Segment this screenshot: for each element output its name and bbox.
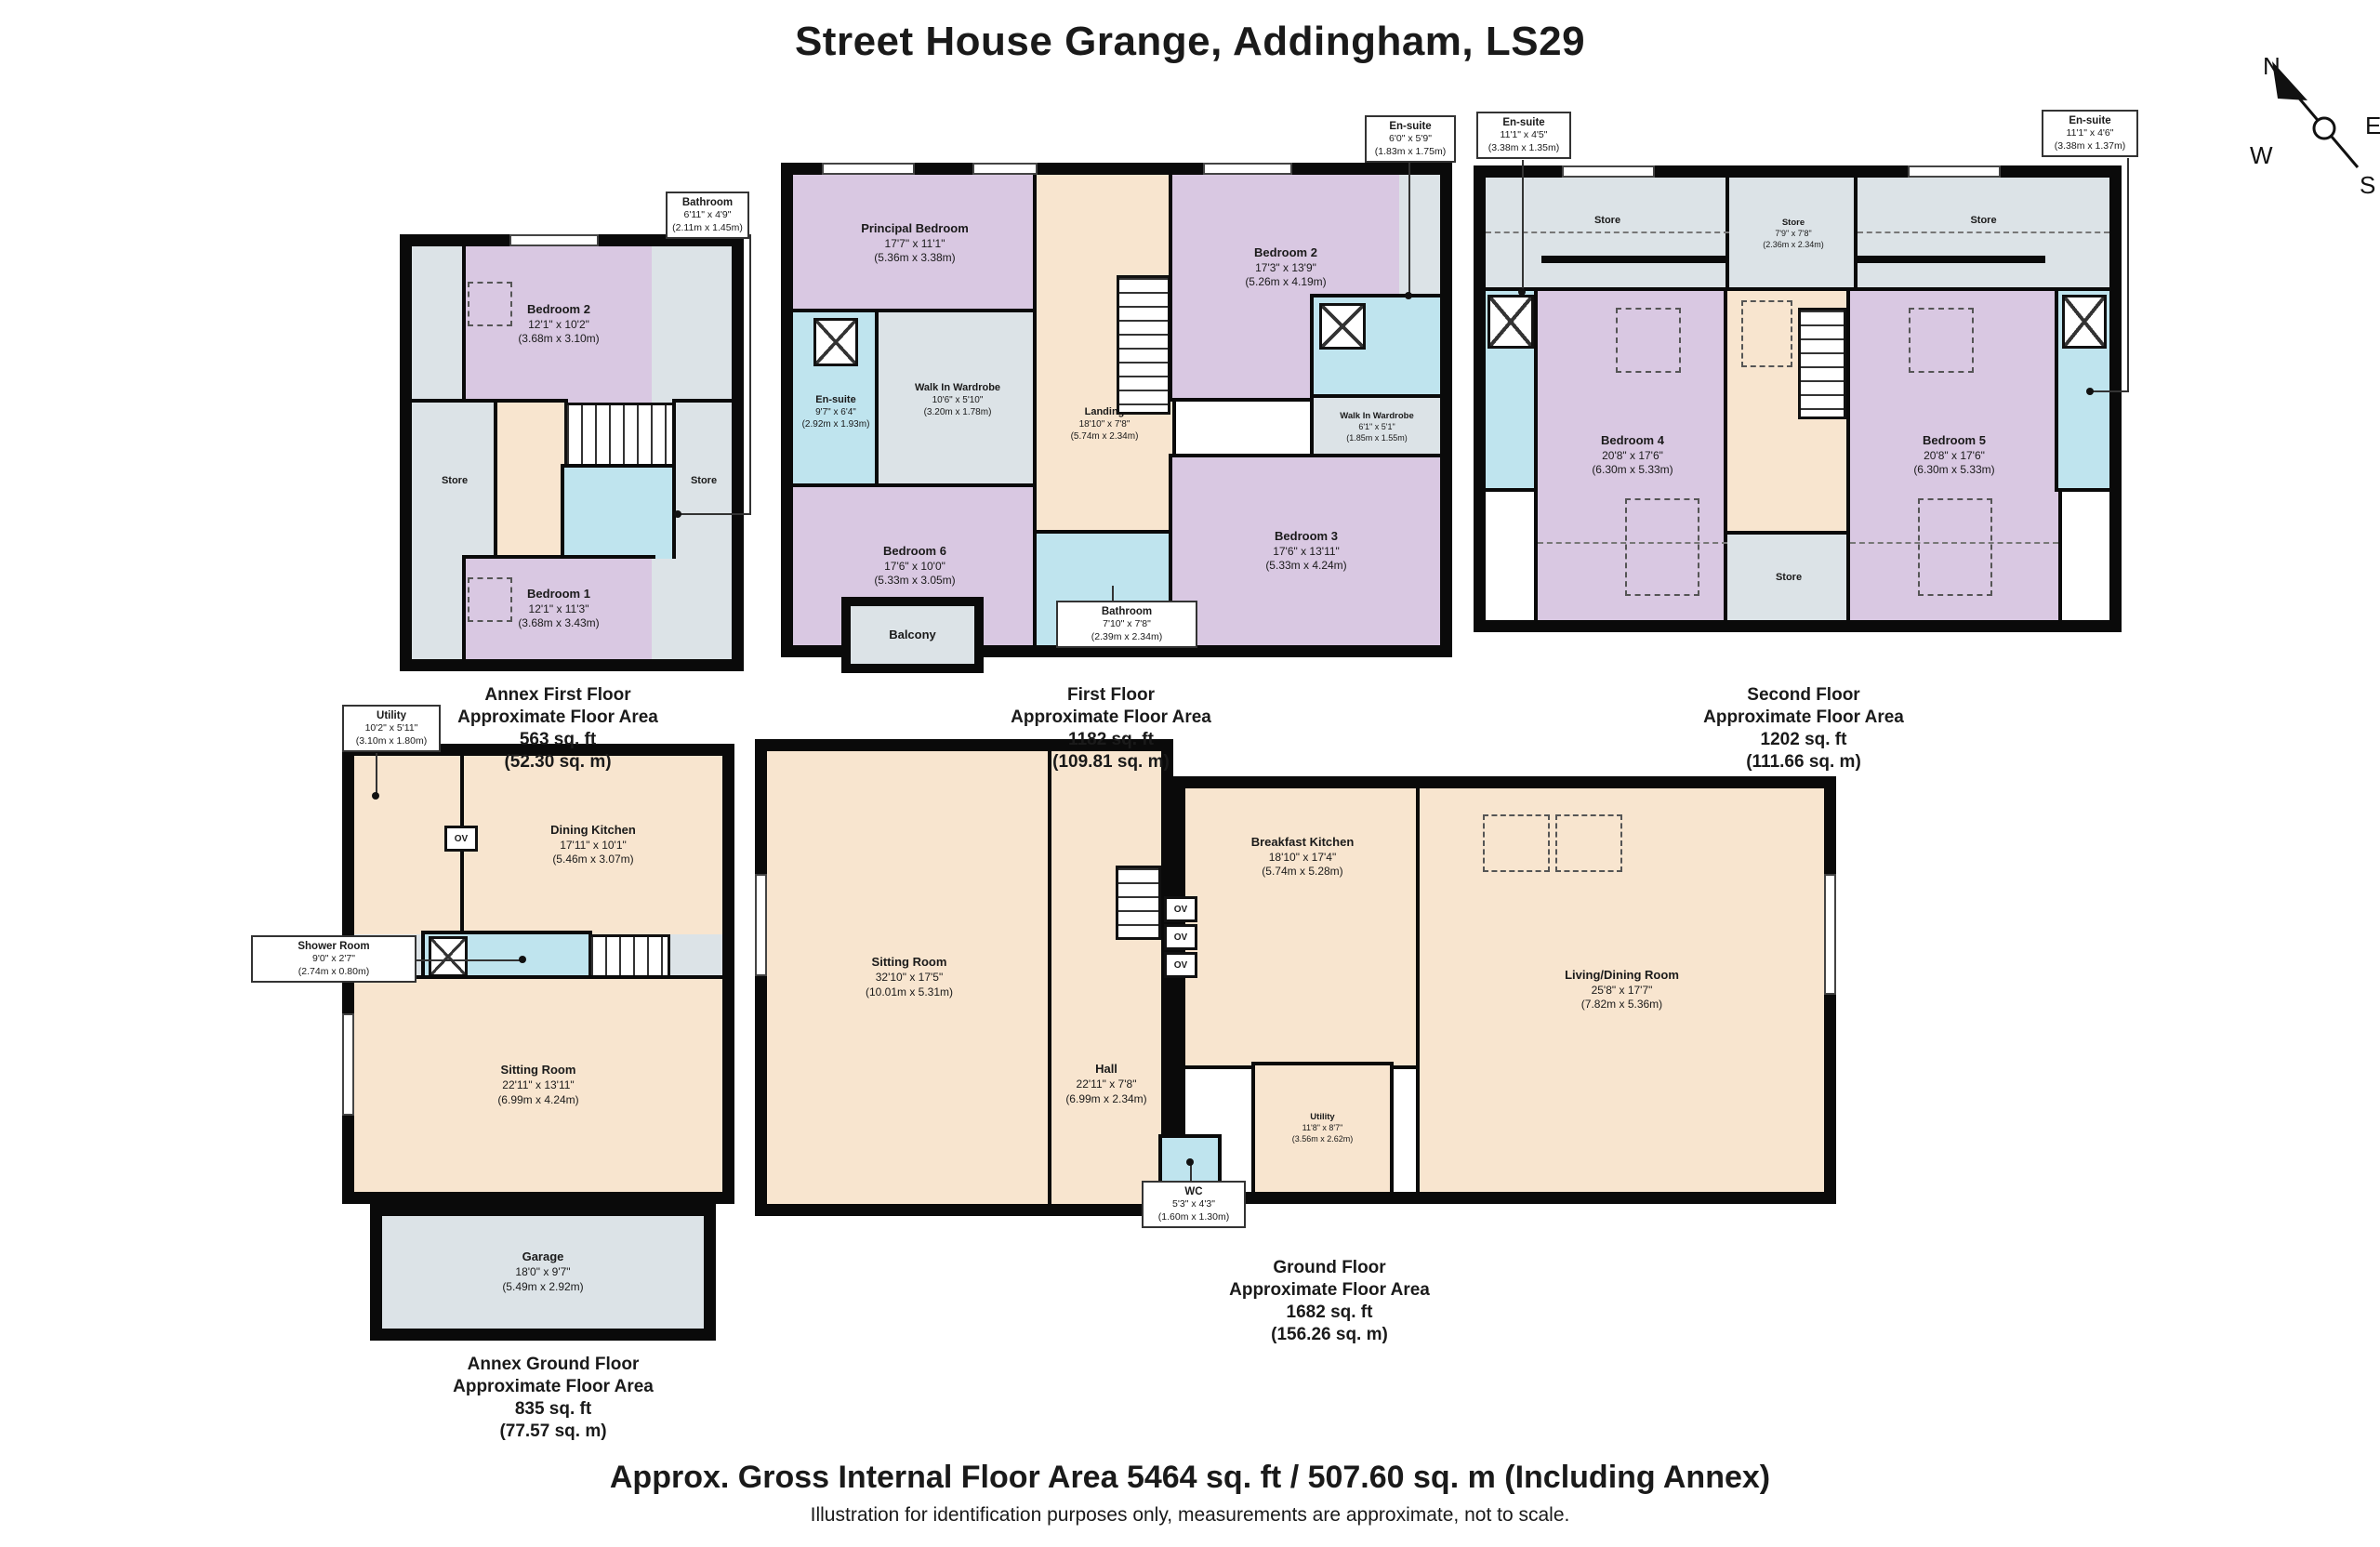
staircase bbox=[588, 934, 670, 979]
skylight-outline bbox=[1555, 814, 1622, 872]
leader-dot bbox=[674, 510, 681, 518]
leader-line bbox=[749, 234, 751, 515]
room-annex-store-left: Store bbox=[412, 403, 497, 559]
floor-label-annex-first: Annex First Floor Approximate Floor Area… bbox=[409, 684, 707, 773]
room-second-store-centre: Store 7'9" x 7'8" (2.36m x 2.34m) bbox=[1729, 178, 1858, 291]
leader-line bbox=[1522, 160, 1524, 292]
skylight-outline bbox=[1625, 498, 1699, 596]
room-walk-in-wardrobe-bedroom-3: Walk In Wardrobe 6'1" x 5'1" (1.85m x 1.… bbox=[1314, 398, 1440, 457]
leader-line bbox=[416, 959, 522, 961]
window bbox=[822, 163, 915, 175]
room-balcony: Balcony bbox=[851, 606, 974, 664]
leader-line bbox=[1190, 1164, 1192, 1181]
window bbox=[1908, 165, 2001, 178]
room-utility: Utility 11'8" x 8'7" (3.56m x 2.62m) bbox=[1255, 1065, 1390, 1192]
compass-south-label: S bbox=[2360, 171, 2375, 199]
shower-tray-icon bbox=[813, 318, 858, 366]
compass-north-label: N bbox=[2263, 52, 2281, 80]
skylight-outline bbox=[1616, 308, 1681, 373]
leader-line bbox=[2127, 158, 2129, 392]
room-bedroom-3: Bedroom 3 17'6" x 13'11" (5.33m x 4.24m) bbox=[1172, 457, 1440, 645]
window bbox=[1562, 165, 1655, 178]
shower-tray-icon bbox=[2062, 295, 2107, 349]
room-hall: Hall 22'11" x 7'8" (6.99m x 2.34m) bbox=[1051, 751, 1161, 1204]
window bbox=[342, 1013, 354, 1116]
leader-dot bbox=[372, 792, 379, 800]
callout-wc: WC 5'3" x 4'3" (1.60m x 1.30m) bbox=[1142, 1181, 1246, 1228]
closet-strip bbox=[652, 246, 732, 403]
leader-dot bbox=[1186, 1158, 1194, 1166]
room-breakfast-kitchen: Breakfast Kitchen 18'10" x 17'4" (5.74m … bbox=[1185, 788, 1420, 1065]
floor-label-annex-ground: Annex Ground Floor Approximate Floor Are… bbox=[404, 1354, 702, 1443]
callout-ensuite-second-left: En-suite 11'1" x 4'5" (3.38m x 1.35m) bbox=[1476, 112, 1571, 159]
garage: Garage 18'0" x 9'7" (5.49m x 2.92m) bbox=[370, 1204, 716, 1341]
leader-dot bbox=[1405, 292, 1412, 299]
compass-hub-icon bbox=[2314, 118, 2334, 139]
window bbox=[509, 234, 599, 246]
annex-landing bbox=[497, 403, 564, 559]
floor-label-ground: Ground Floor Approximate Floor Area 1682… bbox=[1181, 1257, 1478, 1346]
oven-label: OV bbox=[444, 826, 478, 852]
room-principal-bedroom: Principal Bedroom 17'7" x 11'1" (5.36m x… bbox=[793, 175, 1037, 312]
page-title: Street House Grange, Addingham, LS29 bbox=[0, 19, 2380, 65]
skylight-outline bbox=[1909, 308, 1974, 373]
attic-dashed-line bbox=[1858, 231, 2109, 233]
room-second-store-bottom: Store bbox=[1727, 535, 1850, 620]
window bbox=[1824, 874, 1836, 995]
window bbox=[972, 163, 1038, 175]
room-second-store-right: Store bbox=[1858, 178, 2109, 291]
skylight-outline bbox=[1741, 300, 1792, 367]
skylight-outline bbox=[1918, 498, 1992, 596]
floorplan-ground-main: Sitting Room 32'10" x 17'5" (10.01m x 5.… bbox=[755, 739, 1173, 1216]
floorplan-first: Principal Bedroom 17'7" x 11'1" (5.36m x… bbox=[781, 163, 1452, 657]
staircase bbox=[1798, 308, 1846, 419]
shower-tray-icon bbox=[1487, 295, 1534, 349]
leader-dot bbox=[2086, 388, 2094, 395]
shower-tray-icon bbox=[1319, 303, 1366, 350]
callout-annex-utility: Utility 10'2" x 5'11" (3.10m x 1.80m) bbox=[342, 705, 441, 752]
shower-tray-icon bbox=[429, 936, 468, 977]
closet-strip bbox=[670, 934, 722, 979]
room-annex-bathroom bbox=[564, 468, 676, 559]
closet-strip bbox=[412, 559, 466, 659]
floorplan-page: Street House Grange, Addingham, LS29 Bed… bbox=[0, 0, 2380, 1547]
room-walk-in-wardrobe-principal: Walk In Wardrobe 10'6" x 5'10" (3.20m x … bbox=[879, 312, 1037, 487]
floorplan-second: Store Store 7'9" x 7'8" (2.36m x 2.34m) … bbox=[1474, 165, 2122, 632]
callout-ensuite-first: En-suite 6'0" x 5'9" (1.83m x 1.75m) bbox=[1365, 115, 1456, 163]
attic-dashed-line bbox=[1538, 542, 1727, 544]
room-annex-store-right: Store bbox=[676, 403, 732, 559]
callout-first-bathroom: Bathroom 7'10" x 7'8" (2.39m x 2.34m) bbox=[1056, 601, 1197, 648]
oven-label: OV bbox=[1164, 952, 1197, 978]
floor-label-first: First Floor Approximate Floor Area 1182 … bbox=[962, 684, 1260, 773]
leader-line bbox=[376, 753, 377, 796]
staircase bbox=[1117, 275, 1170, 415]
room-sitting-room: Sitting Room 32'10" x 17'5" (10.01m x 5.… bbox=[767, 751, 1051, 1204]
staircase bbox=[564, 403, 676, 468]
compass-east-label: E bbox=[2365, 112, 2380, 139]
closet-strip bbox=[412, 246, 466, 403]
leader-line bbox=[678, 513, 751, 515]
gross-area-summary: Approx. Gross Internal Floor Area 5464 s… bbox=[0, 1460, 2380, 1496]
skylight-outline bbox=[468, 282, 512, 326]
skylight-outline bbox=[468, 577, 512, 622]
callout-shower-room: Shower Room 9'0" x 2'7" (2.74m x 0.80m) bbox=[251, 935, 416, 983]
floorplan-ground-wing: Breakfast Kitchen 18'10" x 17'4" (5.74m … bbox=[1173, 776, 1836, 1204]
callout-ensuite-second-right: En-suite 11'1" x 4'6" (3.38m x 1.37m) bbox=[2042, 110, 2138, 157]
compass-west-label: W bbox=[2250, 141, 2273, 169]
window bbox=[755, 874, 767, 976]
disclaimer-text: Illustration for identification purposes… bbox=[0, 1504, 2380, 1527]
knee-wall bbox=[1541, 256, 1729, 263]
room-annex-sitting-room: Sitting Room 22'11" x 13'11" (6.99m x 4.… bbox=[354, 979, 722, 1192]
leader-line bbox=[1408, 160, 1410, 296]
compass-rose: N E W S bbox=[2248, 46, 2380, 205]
floor-label-second: Second Floor Approximate Floor Area 1202… bbox=[1655, 684, 1952, 773]
leader-dot bbox=[1518, 288, 1526, 296]
attic-dashed-line bbox=[1850, 542, 2058, 544]
knee-wall bbox=[1858, 256, 2045, 263]
callout-annex-bathroom: Bathroom 6'11" x 4'9" (2.11m x 1.45m) bbox=[666, 192, 749, 239]
closet-strip bbox=[652, 559, 732, 659]
staircase bbox=[1116, 866, 1161, 940]
oven-label: OV bbox=[1164, 896, 1197, 922]
window bbox=[1203, 163, 1292, 175]
floorplan-annex-first: Bedroom 2 12'1" x 10'2" (3.68m x 3.10m) … bbox=[400, 234, 744, 671]
leader-dot bbox=[519, 956, 526, 963]
oven-label: OV bbox=[1164, 924, 1197, 950]
leader-line bbox=[2090, 390, 2127, 392]
room-garage: Garage 18'0" x 9'7" (5.49m x 2.92m) bbox=[382, 1216, 704, 1329]
skylight-outline bbox=[1483, 814, 1550, 872]
balcony: Balcony bbox=[841, 597, 984, 673]
room-dining-kitchen: Dining Kitchen 17'11" x 10'1" (5.46m x 3… bbox=[464, 756, 722, 934]
